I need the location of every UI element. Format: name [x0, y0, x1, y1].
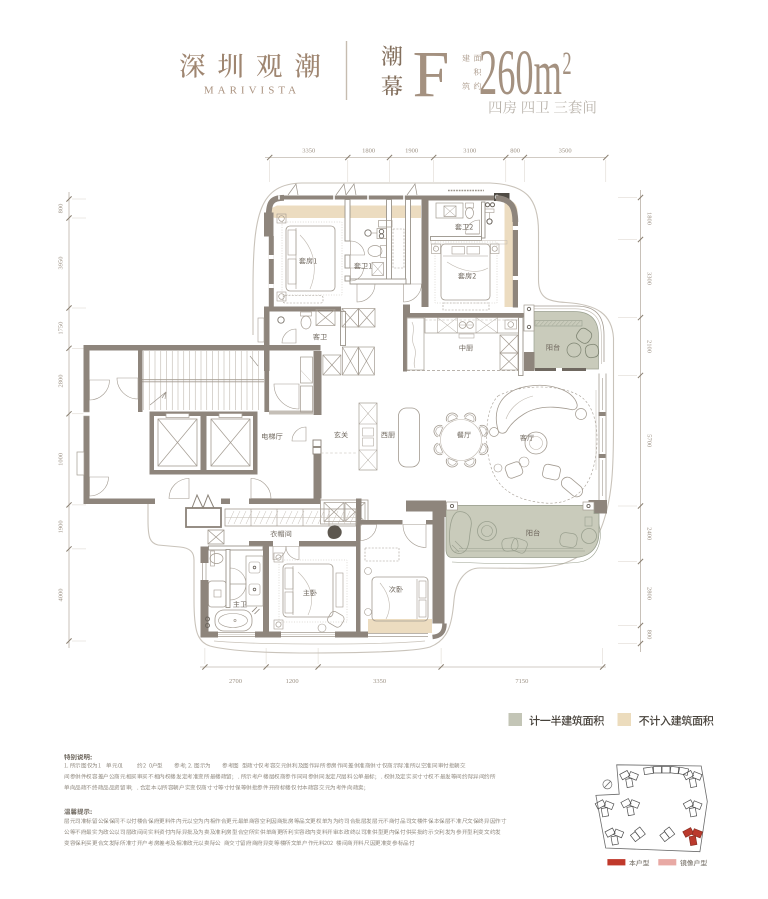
svg-text:3350: 3350	[373, 678, 386, 685]
svg-text:F: F	[413, 38, 450, 111]
svg-text:3300: 3300	[646, 272, 653, 285]
svg-text:MARIVISTA: MARIVISTA	[204, 85, 300, 97]
svg-text:800: 800	[58, 204, 65, 214]
svg-text:4000: 4000	[58, 588, 65, 601]
svg-text:2400: 2400	[646, 527, 653, 540]
svg-text:3950: 3950	[58, 257, 65, 270]
svg-text:2700: 2700	[229, 678, 242, 685]
svg-text:2800: 2800	[646, 587, 653, 600]
svg-text:3350: 3350	[302, 148, 315, 155]
svg-text:2100: 2100	[646, 340, 653, 353]
svg-text:1750: 1750	[58, 322, 65, 335]
svg-text:1800: 1800	[362, 148, 375, 155]
svg-text:1900: 1900	[58, 520, 65, 533]
svg-text:800: 800	[646, 630, 653, 640]
svg-text:2800: 2800	[58, 375, 65, 388]
svg-text:800: 800	[510, 148, 520, 155]
svg-text:3500: 3500	[559, 148, 572, 155]
svg-text:1900: 1900	[405, 148, 418, 155]
svg-text:3100: 3100	[463, 148, 476, 155]
svg-text:260m2: 260m2	[479, 37, 572, 109]
svg-text:7150: 7150	[515, 678, 528, 685]
svg-text:1800: 1800	[646, 212, 653, 225]
svg-text:1200: 1200	[286, 678, 299, 685]
svg-text:1000: 1000	[58, 453, 65, 466]
svg-text:5700: 5700	[646, 434, 653, 447]
